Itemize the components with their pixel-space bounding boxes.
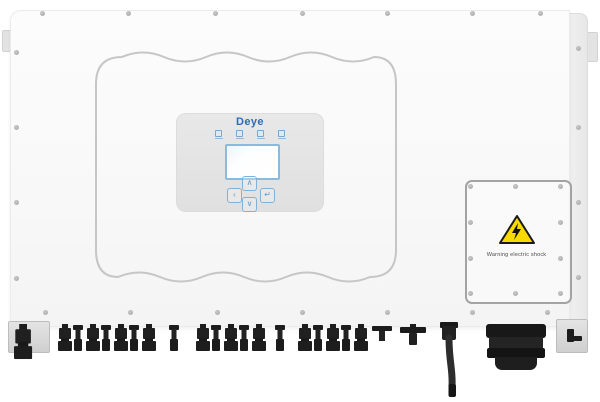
control-panel: Deye ∧ ‹ ↵ ∨ [176, 113, 324, 212]
led-indicator [236, 130, 244, 139]
screw-icon [213, 11, 218, 16]
mc4-connector-plug [86, 324, 100, 351]
lcd-screen [225, 144, 280, 180]
screw-icon [538, 11, 543, 16]
mc4-connector-nut [312, 324, 324, 351]
screw-icon [558, 291, 563, 296]
mc4-connector-plug [14, 324, 32, 359]
mc4-connector-nut [100, 324, 112, 351]
screw-icon [513, 291, 518, 296]
mc4-connector-nut [72, 324, 84, 351]
screw-icon [14, 125, 19, 130]
inverter-photo: Deye ∧ ‹ ↵ ∨ Warning electric shock [0, 0, 600, 402]
screw-icon [385, 310, 390, 315]
mc4-connector-plug [114, 324, 128, 351]
mc4-connector-nut [340, 324, 352, 351]
comm-connector [400, 324, 426, 346]
led-indicator [278, 130, 286, 139]
screw-icon [558, 220, 563, 225]
mc4-connector-plug [224, 324, 238, 351]
warning-triangle-icon [498, 214, 536, 246]
mc4-connector-plug [298, 324, 312, 351]
mc4-connector-plug [252, 324, 266, 351]
screw-icon [468, 220, 473, 225]
screw-icon [300, 310, 305, 315]
screw-icon [470, 310, 475, 315]
screw-icon [215, 310, 220, 315]
brand-logo: Deye [176, 116, 324, 128]
mc4-connector-nut [128, 324, 140, 351]
screw-icon [40, 11, 45, 16]
led-indicator [257, 130, 265, 139]
screw-icon [468, 291, 473, 296]
screw-icon [470, 11, 475, 16]
down-button: ∨ [242, 197, 257, 212]
up-button: ∧ [242, 176, 257, 191]
screw-icon [576, 200, 581, 205]
bracket-hook-icon [572, 336, 582, 341]
screw-icon [300, 11, 305, 16]
comm-cable [432, 322, 472, 400]
left-button: ‹ [227, 188, 242, 203]
screw-icon [558, 256, 563, 261]
screw-icon [128, 310, 133, 315]
ac-cable-gland [495, 357, 537, 370]
screw-icon [545, 310, 550, 315]
screw-icon [43, 310, 48, 315]
screw-icon [468, 256, 473, 261]
mc4-connector-plug [196, 324, 210, 351]
screw-icon [576, 46, 581, 51]
mc4-connector-nut [238, 324, 250, 351]
led-indicator [215, 130, 223, 139]
antenna-connector [372, 324, 392, 342]
warning-label-text: Warning electric shock [465, 252, 568, 258]
screw-icon [14, 50, 19, 55]
screw-icon [558, 184, 563, 189]
screw-icon [14, 276, 19, 281]
mc4-connector-plug [354, 324, 368, 351]
mc4-connector-nut [274, 324, 286, 351]
led-indicator-row [176, 130, 324, 139]
screw-icon [126, 11, 131, 16]
warning-sticker: Warning electric shock [465, 214, 568, 258]
screw-icon [468, 184, 473, 189]
screw-icon [14, 200, 19, 205]
screw-icon [576, 125, 581, 130]
screw-icon [576, 275, 581, 280]
mc4-connector-nut [168, 324, 180, 351]
screw-icon [385, 11, 390, 16]
mc4-connector-plug [326, 324, 340, 351]
mc4-connector-plug [58, 324, 72, 351]
mc4-connector-plug [142, 324, 156, 351]
mc4-connector-nut [210, 324, 222, 351]
ac-cable-gland [486, 324, 546, 338]
screw-icon [513, 184, 518, 189]
enter-button: ↵ [260, 188, 275, 203]
